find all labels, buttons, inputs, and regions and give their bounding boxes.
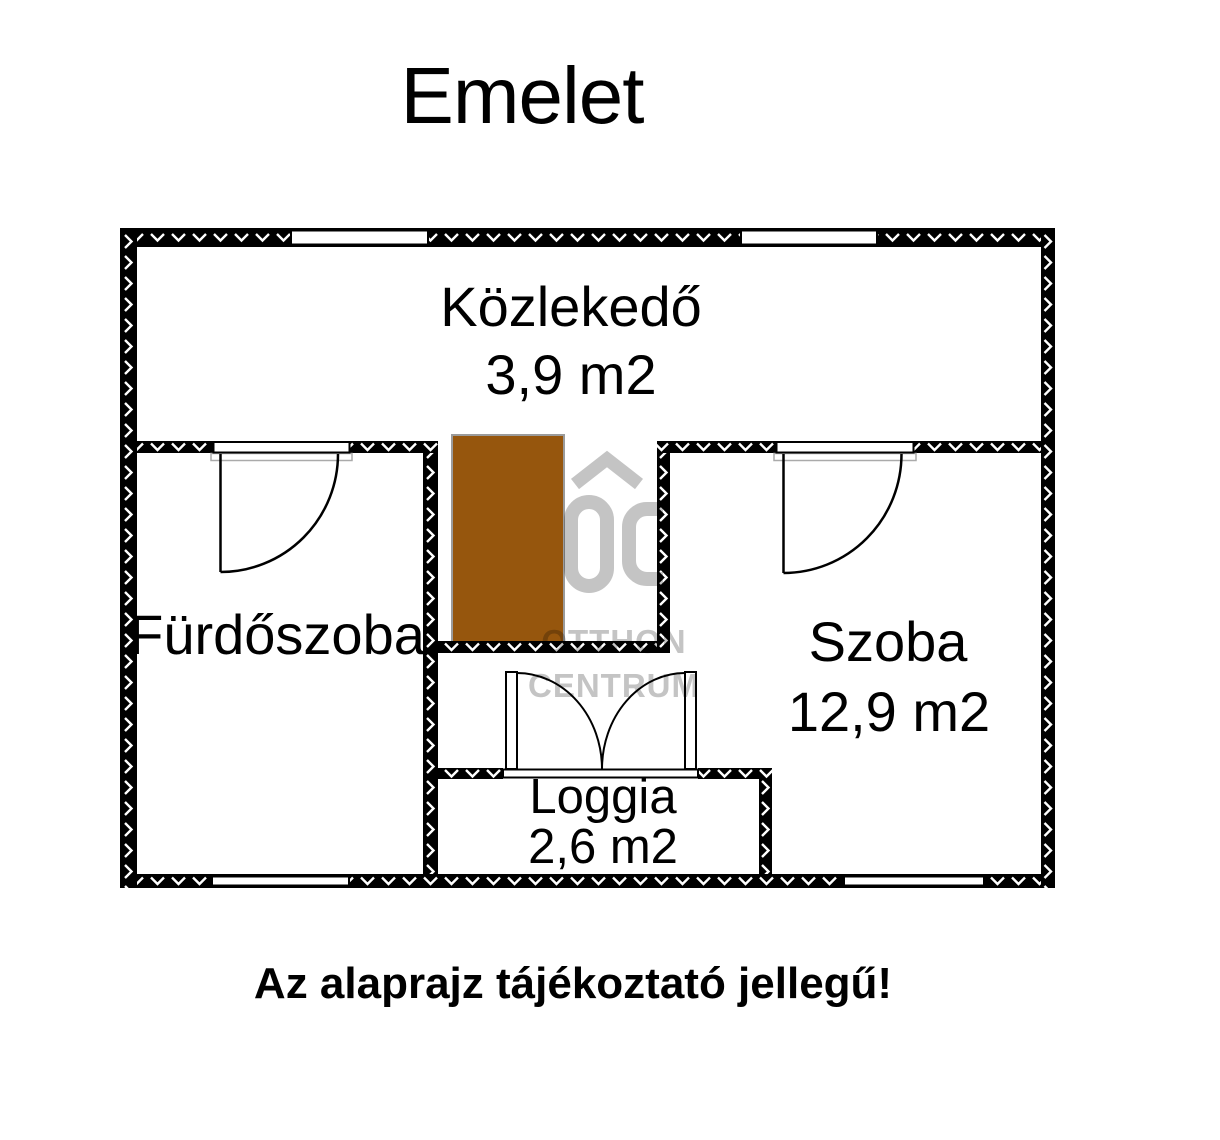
windows <box>212 231 984 886</box>
wall-room-left <box>657 453 670 653</box>
bathroom-door-frame <box>211 454 352 461</box>
wall-under-stairs <box>423 641 670 653</box>
bathroom-door-swing-arc <box>221 454 339 572</box>
room-door-panel <box>777 442 914 453</box>
wall-mid-seg4 <box>914 441 1041 453</box>
floor-plan-page: Emelet Közlekedő 3,9 m2 Fürdőszoba Szoba… <box>0 0 1220 1140</box>
loggia-door-left-arc <box>517 673 602 769</box>
window-bottom-bathroom <box>212 877 349 886</box>
wall-loggia-top-right <box>698 768 772 779</box>
window-bottom-room <box>844 877 984 886</box>
wall-left <box>120 228 137 888</box>
wall-top <box>120 228 1055 247</box>
wall-mid-seg2 <box>350 441 438 453</box>
wall-mid-seg3 <box>657 441 776 453</box>
wall-bathroom-right <box>423 453 438 874</box>
loggia-door-right-arc <box>602 673 685 769</box>
loggia-door-left-leaf <box>506 672 517 769</box>
loggia-door-right-leaf <box>685 672 696 769</box>
window-top-right <box>741 231 877 245</box>
walls <box>120 228 1055 888</box>
room-door-frame <box>774 454 916 461</box>
staircase-block <box>452 435 564 642</box>
loggia-door-sill <box>503 770 698 778</box>
room-door-swing-arc <box>784 454 902 573</box>
bathroom-door <box>211 442 352 572</box>
wall-loggia-right <box>759 779 772 874</box>
window-top-left <box>291 231 428 245</box>
wall-loggia-top-left <box>438 768 503 779</box>
wall-right <box>1041 228 1055 888</box>
room-door <box>774 442 916 573</box>
wall-mid-seg1 <box>137 441 213 453</box>
bathroom-door-panel <box>214 442 350 453</box>
floor-plan-drawing <box>0 0 1220 1140</box>
loggia-double-door <box>503 672 698 778</box>
